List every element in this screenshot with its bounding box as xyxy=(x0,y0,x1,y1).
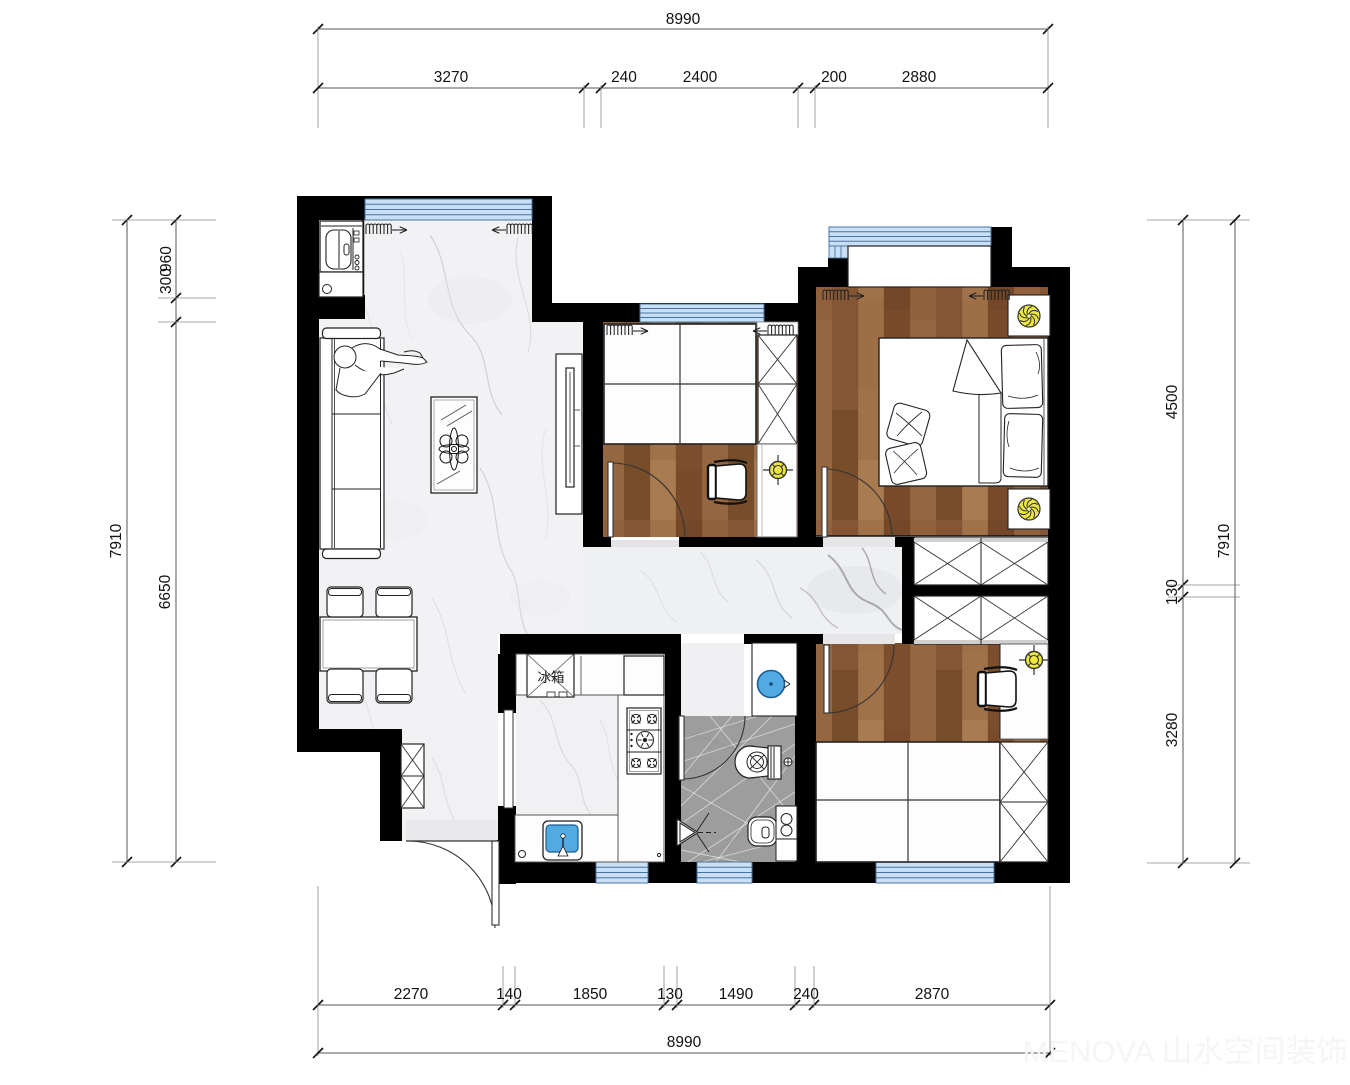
svg-text:7910: 7910 xyxy=(1216,523,1233,558)
svg-text:4500: 4500 xyxy=(1164,384,1181,419)
svg-text:2400: 2400 xyxy=(683,69,718,86)
svg-text:3280: 3280 xyxy=(1164,712,1181,747)
svg-text:8990: 8990 xyxy=(667,1034,702,1051)
svg-text:130: 130 xyxy=(1164,579,1181,605)
svg-text:2270: 2270 xyxy=(394,986,429,1003)
svg-text:6650: 6650 xyxy=(157,574,174,609)
svg-text:1850: 1850 xyxy=(573,986,608,1003)
svg-text:2870: 2870 xyxy=(915,986,950,1003)
svg-text:960: 960 xyxy=(158,246,175,272)
svg-text:130: 130 xyxy=(657,986,683,1003)
svg-text:2880: 2880 xyxy=(902,69,937,86)
svg-text:1490: 1490 xyxy=(719,986,754,1003)
svg-text:7910: 7910 xyxy=(108,523,125,558)
svg-text:8990: 8990 xyxy=(666,11,701,28)
svg-text:140: 140 xyxy=(496,986,522,1003)
svg-text:冰箱: 冰箱 xyxy=(538,670,565,685)
svg-text:3270: 3270 xyxy=(434,69,469,86)
svg-text:200: 200 xyxy=(821,69,847,86)
svg-text:240: 240 xyxy=(611,69,637,86)
svg-text:240: 240 xyxy=(793,986,819,1003)
svg-text:MENOVA 山水空间装饰: MENOVA 山水空间装饰 xyxy=(1023,1034,1348,1069)
svg-text:300: 300 xyxy=(158,268,175,294)
